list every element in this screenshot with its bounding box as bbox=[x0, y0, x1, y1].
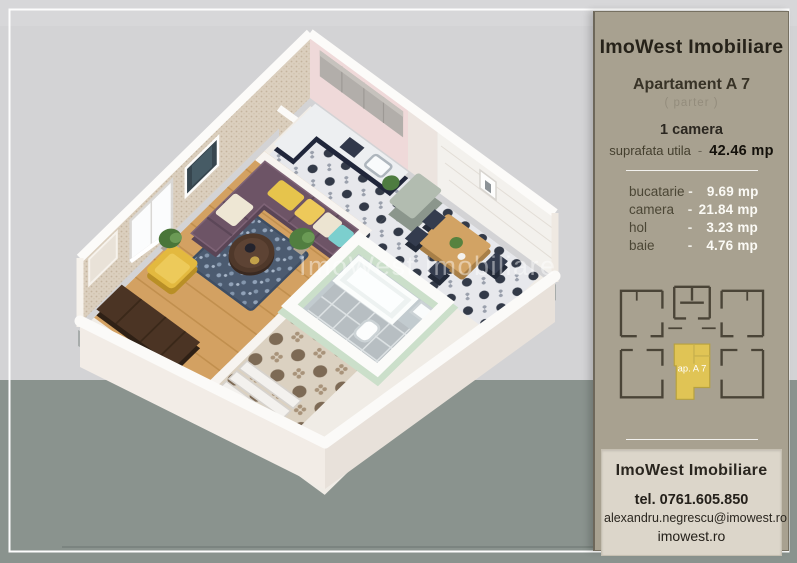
table-row: baie - 4.76 mp bbox=[629, 238, 758, 256]
dash: - bbox=[684, 202, 696, 217]
agency-title: ImoWest Imobiliare bbox=[595, 36, 788, 59]
room-area: 9.69 mp bbox=[697, 184, 759, 199]
table-row: hol - 3.23 mp bbox=[629, 220, 758, 238]
room-areas-table: bucatarie - 9.69 mp camera - 21.84 mp ho… bbox=[629, 184, 758, 256]
contact-card: ImoWest Imobiliare tel. 0761.605.850 ale… bbox=[601, 449, 782, 556]
info-panel: ImoWest Imobiliare Apartament A 7 ( part… bbox=[593, 11, 789, 551]
usable-area-value: 42.46 mp bbox=[709, 143, 773, 159]
contact-brand: ImoWest Imobiliare bbox=[604, 462, 779, 480]
usable-area-label: suprafata utila bbox=[609, 143, 691, 158]
usable-area-line: suprafata utila-42.46 mp bbox=[595, 143, 788, 159]
dash: - bbox=[685, 184, 697, 199]
watermark: ImoWest Imobiliare bbox=[299, 251, 557, 282]
contact-email: alexandru.negrescu@imowest.ro bbox=[604, 511, 779, 525]
room-name: baie bbox=[629, 238, 684, 253]
floor-note: ( parter ) bbox=[595, 97, 788, 109]
contact-phone: tel. 0761.605.850 bbox=[604, 492, 779, 508]
highlighted-apartment-label: ap. A 7 bbox=[677, 364, 706, 374]
apartment-title: Apartament A 7 bbox=[595, 76, 788, 94]
contact-website: imowest.ro bbox=[604, 528, 779, 544]
table-row: bucatarie - 9.69 mp bbox=[629, 184, 758, 202]
rooms-count: 1 camera bbox=[595, 122, 788, 138]
room-name: camera bbox=[629, 202, 684, 217]
dash: - bbox=[684, 238, 696, 253]
divider bbox=[626, 170, 758, 171]
building-floorplan-schematic: ap. A 7 bbox=[610, 277, 774, 423]
room-name: hol bbox=[629, 220, 684, 235]
room-area: 21.84 mp bbox=[696, 202, 758, 217]
listing-card: ImoWest Imobiliare ImoWest Imobiliare Ap… bbox=[0, 0, 797, 563]
table-row: camera - 21.84 mp bbox=[629, 202, 758, 220]
dash: - bbox=[684, 220, 696, 235]
room-name: bucatarie bbox=[629, 184, 685, 199]
divider bbox=[626, 439, 758, 440]
dash: - bbox=[698, 143, 702, 158]
room-area: 4.76 mp bbox=[696, 238, 758, 253]
room-area: 3.23 mp bbox=[696, 220, 758, 235]
